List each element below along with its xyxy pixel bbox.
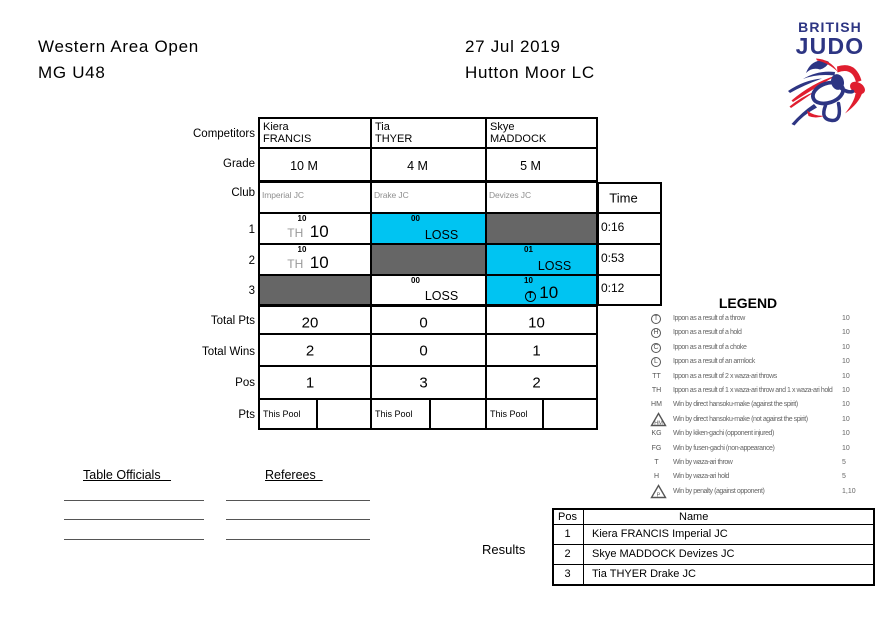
svg-text:P: P	[657, 493, 661, 499]
svg-text:HM: HM	[654, 421, 663, 427]
